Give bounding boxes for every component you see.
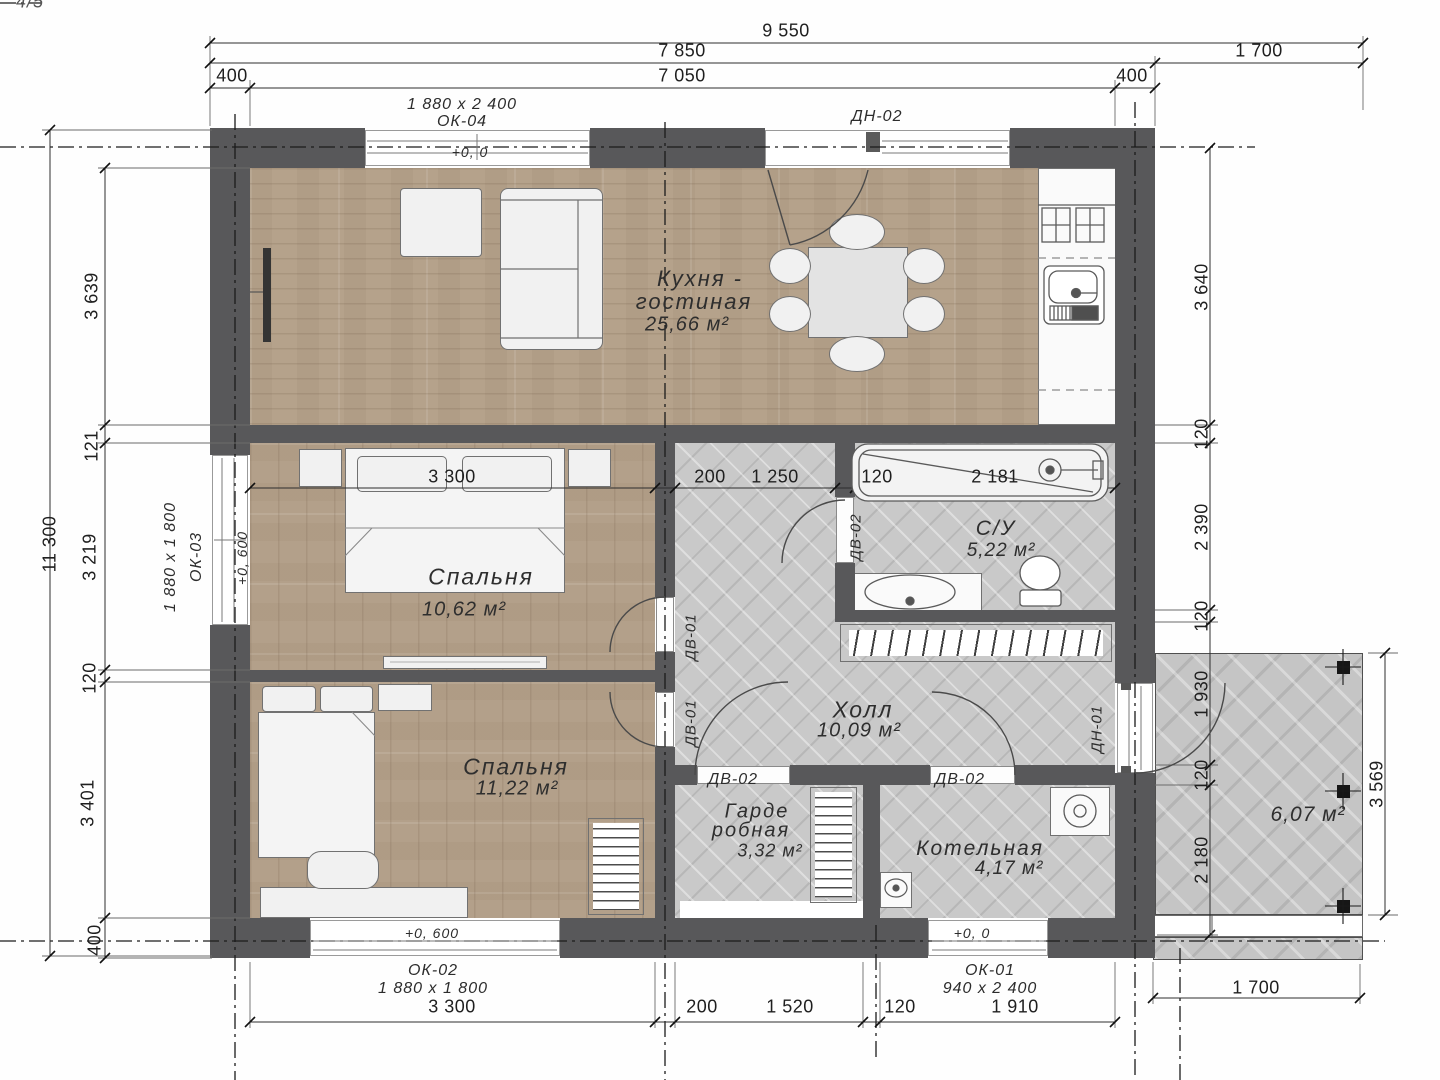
wall-interior <box>1015 765 1115 785</box>
room-bathroom-area: 5,22 м² <box>967 540 1036 562</box>
dim-top-house: 7 850 <box>658 41 706 62</box>
window-ok02-size: 1 880 x 1 800 <box>378 980 488 998</box>
room-terrace-area: 6,07 м² <box>1270 803 1345 827</box>
dim-top-terrace: 1 700 <box>1235 41 1283 62</box>
window-ok01-size: 940 x 2 400 <box>943 980 1038 998</box>
desk <box>260 887 468 918</box>
corner-note: 4/5 <box>16 0 44 13</box>
tv <box>263 248 271 342</box>
room-bathroom-name: С/У <box>976 517 1016 541</box>
dim-left-s2: 121 <box>82 430 103 462</box>
chair <box>829 336 885 372</box>
door-dn02 <box>765 130 1010 166</box>
coat-rack <box>840 624 1112 662</box>
chair <box>769 248 811 284</box>
door-leaf-dv01 <box>656 597 674 652</box>
dim-right-s7: 2 180 <box>1192 836 1213 884</box>
dim-right-s4: 120 <box>1192 600 1213 632</box>
dim-terrace-height: 3 569 <box>1367 760 1388 808</box>
dim-top-wall-left: 400 <box>216 66 248 87</box>
door-dv01-label: ДВ-01 <box>683 613 700 660</box>
level-mark: +0, 600 <box>234 531 250 585</box>
terrace-post <box>1337 661 1350 674</box>
dim-bottom-s3: 1 520 <box>766 997 814 1018</box>
boiler-unit <box>1050 787 1110 836</box>
window-ok03-size: 1 880 x 1 800 <box>162 502 180 612</box>
level-mark: +0, 600 <box>405 925 459 941</box>
wall-interior <box>835 610 1115 622</box>
room-kitchen-living-area: 25,66 м² <box>645 314 729 337</box>
dim-right-s5: 1 930 <box>1192 670 1213 718</box>
room-wardrobe-name2: робная <box>712 820 790 843</box>
dim-mid-s5: 2 181 <box>971 467 1019 488</box>
dim-left-total: 11 300 <box>40 516 61 573</box>
coffee-table <box>400 188 482 257</box>
dim-right-s6: 120 <box>1192 759 1213 791</box>
terrace-step-lower <box>1153 937 1363 960</box>
bed-single <box>258 712 375 858</box>
pump-unit <box>880 872 912 908</box>
floor-plan: 4/5 9 550 7 850 1 700 400 7 050 400 1 88… <box>0 0 1440 1080</box>
door-leaf-dv01 <box>656 692 674 747</box>
dim-left-s6: 400 <box>85 924 106 956</box>
room-bedroom-bottom-area: 11,22 м² <box>476 778 559 801</box>
level-mark: +0, 0 <box>954 925 991 941</box>
wall-interior <box>835 443 855 497</box>
window-ok04-name: ОК-04 <box>437 113 487 131</box>
nightstand <box>299 449 342 487</box>
window-ok01-name: ОК-01 <box>965 962 1015 980</box>
window-ok04-size: 1 880 x 2 400 <box>407 96 517 114</box>
dim-mid-s3: 1 250 <box>751 467 799 488</box>
room-bedroom-top-area: 10,62 м² <box>422 599 506 622</box>
dim-mid-s2: 200 <box>694 467 726 488</box>
dining-table <box>808 247 908 338</box>
wall-interior <box>655 747 675 918</box>
wall-right <box>1115 773 1155 958</box>
dim-terrace-width: 1 700 <box>1232 978 1280 999</box>
room-bedroom-bottom-name: Спальня <box>463 754 569 781</box>
bathroom-sink-counter <box>845 573 982 612</box>
dim-bottom-s2: 200 <box>686 997 718 1018</box>
dim-bottom-s5: 1 910 <box>991 997 1039 1018</box>
dim-right-s1: 3 640 <box>1192 263 1213 311</box>
shelf-rack-wardrobe <box>810 787 857 903</box>
dim-top-total: 9 550 <box>762 21 810 42</box>
dim-right-s2: 120 <box>1192 418 1213 450</box>
terrace-step-white <box>1153 915 1363 937</box>
wardrobe-floor-strip <box>680 901 863 918</box>
level-mark: +0, 0 <box>452 144 489 160</box>
pillow <box>320 686 373 712</box>
sofa <box>500 188 603 350</box>
kitchen-counter <box>1038 168 1115 425</box>
dim-left-s4: 120 <box>80 662 101 694</box>
dim-bottom-s1: 3 300 <box>428 997 476 1018</box>
dim-top-inner: 7 050 <box>658 66 706 87</box>
chair <box>903 248 945 284</box>
wall-interior <box>250 670 655 682</box>
door-dn01-label: ДН-01 <box>1089 705 1106 753</box>
door-dn01 <box>1117 683 1153 773</box>
chair <box>769 296 811 332</box>
room-boiler-area: 4,17 м² <box>975 858 1044 880</box>
dim-left-s1: 3 639 <box>82 272 103 320</box>
dim-bottom-s4: 120 <box>884 997 916 1018</box>
door-dv01-label: ДВ-01 <box>683 699 700 746</box>
dn02-mullion <box>866 132 880 152</box>
room-bedroom-top-name: Спальня <box>428 564 534 591</box>
dim-right-s3: 2 390 <box>1192 503 1213 551</box>
wall-left <box>210 128 250 455</box>
dim-left-s5: 3 401 <box>78 779 99 827</box>
dim-top-wall-right: 400 <box>1116 66 1148 87</box>
terrace-post <box>1337 900 1350 913</box>
dim-left-s3: 3 219 <box>80 533 101 581</box>
door-dn02-label: ДН-02 <box>852 108 903 126</box>
wall-left <box>210 625 250 958</box>
shelf-rack-bedroom <box>588 818 644 915</box>
wall-interior <box>675 765 697 785</box>
wall-top <box>590 128 765 168</box>
terrace-post <box>1337 785 1350 798</box>
chair <box>829 214 885 250</box>
room-kitchen-living-name2: гостиная <box>636 289 753 315</box>
nightstand <box>378 684 432 711</box>
window-ok03-name: ОК-03 <box>188 532 206 582</box>
door-dv02-label: ДВ-02 <box>935 771 985 789</box>
pillow <box>262 686 316 712</box>
room-wardrobe-area: 3,32 м² <box>737 841 802 862</box>
dim-mid-s1: 3 300 <box>428 467 476 488</box>
dim-mid-s4: 120 <box>861 467 893 488</box>
desk-chair <box>307 851 379 889</box>
wall-interior <box>655 652 675 692</box>
door-dv02-label: ДВ-02 <box>708 771 758 789</box>
wall-interior <box>790 765 930 785</box>
wall-interior <box>655 443 675 597</box>
room-hall-area: 10,09 м² <box>817 720 901 743</box>
nightstand <box>568 449 611 487</box>
wall-interior <box>863 785 880 918</box>
chair <box>903 296 945 332</box>
dresser <box>383 656 547 669</box>
door-dv02-label: ДВ-02 <box>848 513 865 560</box>
wall-right <box>1115 128 1155 683</box>
window-ok02-name: ОК-02 <box>408 962 458 980</box>
wall-bottom <box>560 918 928 958</box>
wall-interior <box>250 425 1115 443</box>
terrace-slab <box>1155 653 1363 915</box>
